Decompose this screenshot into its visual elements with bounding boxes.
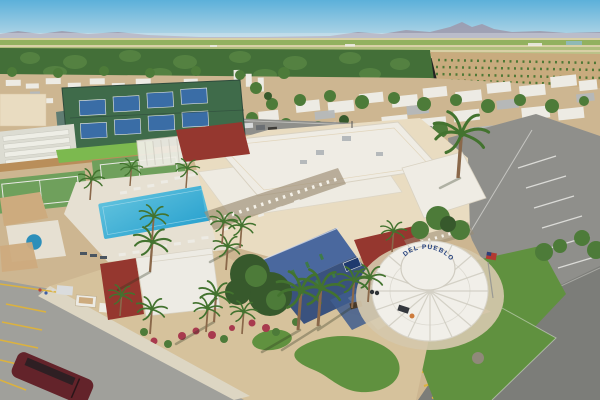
aerial-photo: DEL PUEBLO bbox=[0, 0, 600, 400]
boulder bbox=[472, 352, 484, 364]
utility-building bbox=[0, 94, 46, 126]
pond bbox=[566, 41, 582, 45]
aerial-photo-del-pueblo-rv-resort: Aerial drone view of an RV resort: Del P… bbox=[0, 0, 600, 400]
